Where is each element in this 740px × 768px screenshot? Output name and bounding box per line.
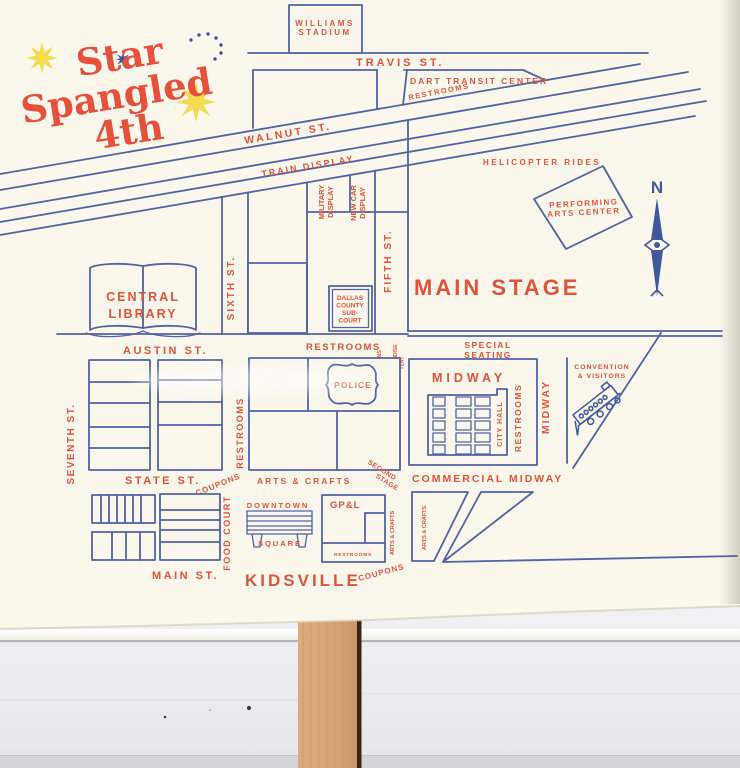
dart-transit-center-label: DART TRANSIT CENTER (410, 76, 548, 86)
arts-crafts-state-label: ARTS & CRAFTS (257, 476, 351, 486)
fan-handle-stick (298, 600, 362, 768)
main-stage-label: MAIN STAGE (414, 275, 580, 300)
svg-text:SQUARE: SQUARE (258, 539, 302, 548)
compass-north-label: N (651, 178, 663, 197)
svg-text:SUB-: SUB- (342, 310, 358, 317)
svg-text:STADIUM: STADIUM (298, 28, 351, 37)
scanned-festival-map-photo: WILLIAMS STADIUM TRAVIS ST. DART TRANSIT… (0, 0, 740, 768)
city-hall-label: CITY HALL (497, 401, 504, 446)
central-library-label: CENTRAL (106, 290, 180, 304)
wall-molding (0, 629, 740, 641)
food-court-label: FOOD COURT (222, 495, 232, 571)
star-burst-icon (26, 42, 58, 74)
gpl-restrooms-label: RESTROOMS (334, 552, 372, 558)
state-street-label: STATE ST. (125, 475, 201, 487)
sub-court-label: DALLAS (337, 295, 364, 302)
svg-text:& VISITORS: & VISITORS (578, 373, 626, 380)
svg-text:DISPLAY: DISPLAY (358, 187, 367, 219)
seventh-street-label: SEVENTH ST. (66, 404, 77, 485)
arts-crafts-v1-label: ARTS & CRAFTS (390, 511, 396, 556)
gpl-building: GP&L RESTROOMS (322, 495, 385, 562)
military-display-label: MILITARY (317, 185, 326, 220)
williams-stadium-label: WILLIAMS (295, 19, 355, 28)
arts-crafts-v2-label: ARTS & CRAFTS (422, 506, 428, 551)
restrooms-court-label: RESTROOMS (306, 342, 381, 353)
svg-text:LIBRARY: LIBRARY (108, 307, 177, 321)
travis-street-label: TRAVIS ST. (356, 57, 444, 69)
convention-visitors-label: CONVENTION (574, 364, 629, 371)
austin-street-label: AUSTIN ST. (123, 345, 208, 357)
restrooms-left-label: RESTROOMS (235, 397, 245, 469)
sixth-street-label: SIXTH ST. (226, 256, 237, 321)
scan-smudge (135, 366, 375, 394)
svg-text:COUNTY: COUNTY (336, 303, 364, 310)
sub-court-building: DALLAS COUNTY SUB- COURT (329, 286, 372, 331)
paper-edge-shadow (718, 0, 740, 604)
helicopter-rides-label: HELICOPTER RIDES (483, 158, 601, 167)
midway-street-label: MIDWAY (540, 380, 552, 434)
kidsville-label: KIDSVILLE (245, 571, 361, 590)
svg-text:COURT: COURT (338, 318, 361, 325)
new-car-display-label: NEW CAR (349, 185, 358, 221)
svg-text:DISPLAY: DISPLAY (326, 186, 335, 218)
midway-area-label: MIDWAY (432, 371, 506, 385)
wall-speck (247, 706, 251, 710)
main-street-label: MAIN ST. (152, 570, 219, 582)
central-library-building: CENTRAL LIBRARY (86, 264, 200, 337)
gpl-label: GP&L (330, 500, 360, 511)
downtown-square-label: DOWNTOWN (247, 501, 310, 510)
commercial-midway-label: COMMERCIAL MIDWAY (412, 473, 563, 485)
special-seating-label: SPECIAL (464, 340, 511, 350)
fifth-street-label: FIFTH ST. (383, 229, 394, 293)
restrooms-midway-label: RESTROOMS (513, 384, 523, 452)
